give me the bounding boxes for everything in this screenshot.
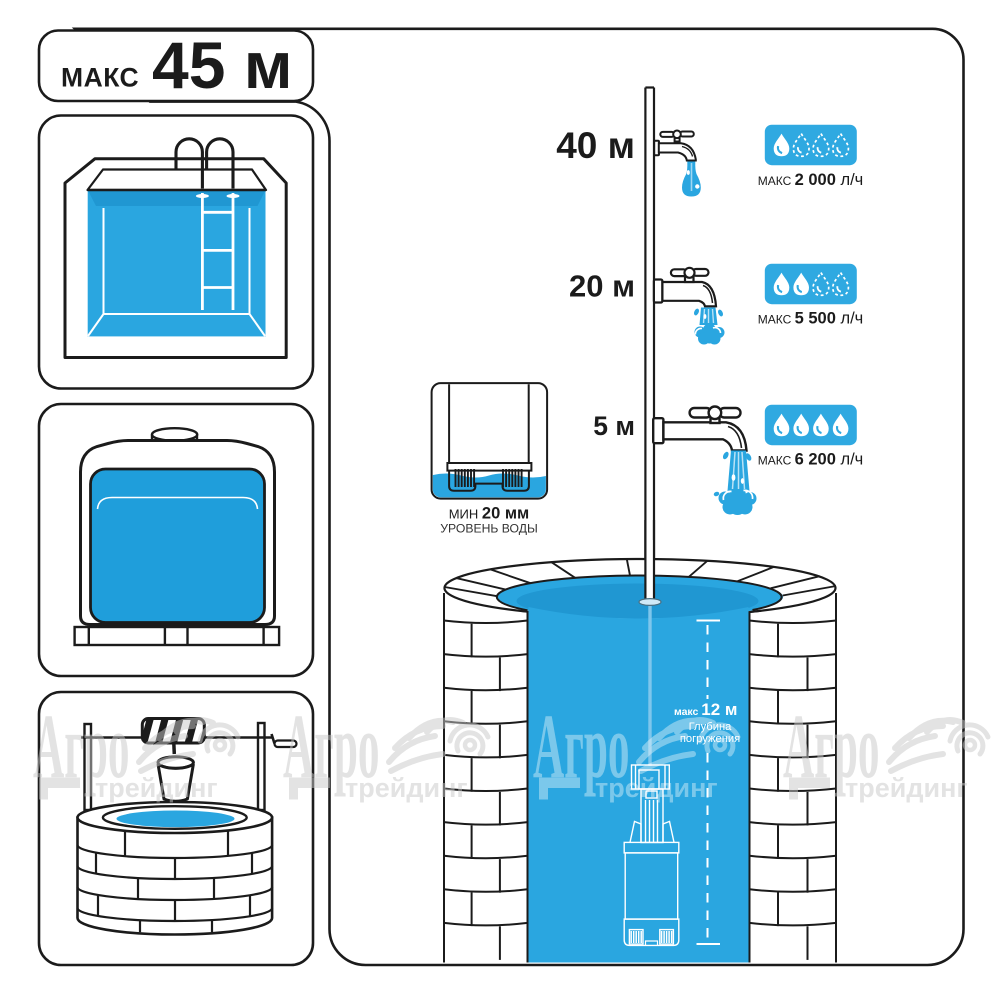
svg-text:МАКС 5 500 л/ч: МАКС 5 500 л/ч (758, 310, 864, 328)
svg-text:УРОВЕНЬ ВОДЫ: УРОВЕНЬ ВОДЫ (440, 522, 538, 536)
svg-text:МИН 20 мм: МИН 20 мм (449, 505, 530, 523)
svg-text:трейдинг: трейдинг (595, 773, 718, 803)
svg-text:40 м: 40 м (556, 125, 635, 166)
svg-text:20 м: 20 м (569, 269, 635, 304)
svg-text:трейдинг: трейдинг (95, 773, 218, 803)
svg-text:МАКС 2 000 л/ч: МАКС 2 000 л/ч (758, 171, 864, 189)
svg-text:МАКС: МАКС (61, 63, 139, 93)
svg-text:трейдинг: трейдинг (345, 773, 468, 803)
svg-text:трейдинг: трейдинг (845, 773, 968, 803)
svg-text:45 м: 45 м (152, 28, 293, 102)
svg-text:5 м: 5 м (593, 411, 635, 441)
svg-text:МАКС 6 200 л/ч: МАКС 6 200 л/ч (758, 451, 864, 469)
